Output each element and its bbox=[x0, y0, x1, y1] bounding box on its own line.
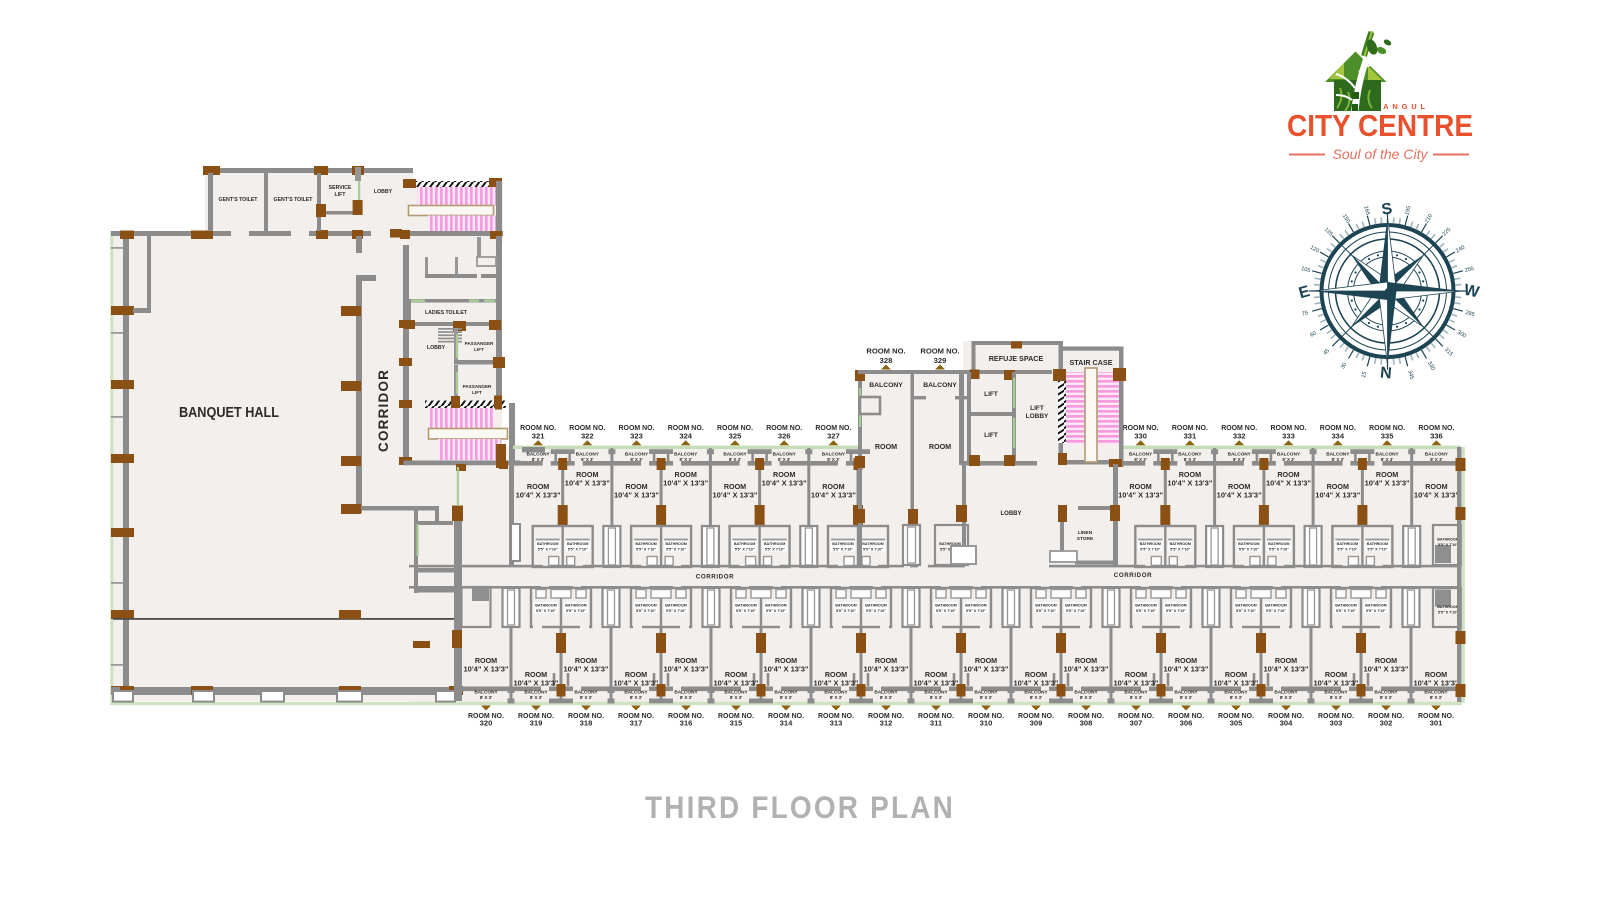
svg-text:336: 336 bbox=[1430, 432, 1443, 441]
svg-text:5'5" X 7'10": 5'5" X 7'10" bbox=[765, 547, 785, 551]
svg-text:334: 334 bbox=[1331, 432, 1344, 441]
svg-text:BATHROOM: BATHROOM bbox=[1135, 604, 1156, 608]
svg-text:8' X 3': 8' X 3' bbox=[1080, 695, 1092, 700]
svg-text:8' X 3': 8' X 3' bbox=[480, 695, 492, 700]
svg-text:BATHROOM: BATHROOM bbox=[1170, 542, 1191, 546]
svg-text:LIFT: LIFT bbox=[984, 432, 998, 439]
svg-text:BATHROOM: BATHROOM bbox=[1268, 542, 1289, 546]
svg-text:319: 319 bbox=[530, 719, 543, 728]
svg-text:5'5" X 7'10": 5'5" X 7'10" bbox=[1266, 609, 1286, 613]
svg-text:8' X 3': 8' X 3' bbox=[980, 695, 992, 700]
svg-text:10'4" X 13'3": 10'4" X 13'3" bbox=[1264, 665, 1309, 674]
svg-text:BATHROOM: BATHROOM bbox=[1165, 604, 1186, 608]
svg-text:BANQUET HALL: BANQUET HALL bbox=[179, 405, 279, 421]
svg-text:5'5" X 7'10": 5'5" X 7'10" bbox=[666, 609, 686, 613]
svg-text:BALCONY: BALCONY bbox=[1174, 690, 1198, 695]
svg-text:8' X 3': 8' X 3' bbox=[630, 695, 642, 700]
svg-text:10'4" X 13'3": 10'4" X 13'3" bbox=[1167, 479, 1212, 488]
svg-text:BALCONY: BALCONY bbox=[824, 690, 848, 695]
svg-text:BATHROOM: BATHROOM bbox=[1365, 604, 1386, 608]
svg-text:8' X 3': 8' X 3' bbox=[680, 695, 692, 700]
svg-text:314: 314 bbox=[780, 719, 793, 728]
svg-text:10'4" X 13'3": 10'4" X 13'3" bbox=[1014, 679, 1059, 688]
svg-text:5'5" X 7'10": 5'5" X 7'10" bbox=[966, 609, 986, 613]
svg-text:BATHROOM: BATHROOM bbox=[1065, 604, 1086, 608]
svg-text:313: 313 bbox=[830, 719, 843, 728]
svg-text:8' X 3': 8' X 3' bbox=[581, 457, 593, 462]
svg-text:8' X 3': 8' X 3' bbox=[1280, 695, 1292, 700]
svg-text:LOBBY: LOBBY bbox=[374, 189, 393, 195]
svg-text:BATHROOM: BATHROOM bbox=[1235, 604, 1256, 608]
svg-text:324: 324 bbox=[679, 432, 692, 441]
svg-text:5'5" X 7'10": 5'5" X 7'10" bbox=[1337, 547, 1357, 551]
svg-text:5'5" X 7'10": 5'5" X 7'10" bbox=[1166, 609, 1186, 613]
svg-text:8' X 3': 8' X 3' bbox=[778, 457, 790, 462]
svg-text:322: 322 bbox=[581, 432, 594, 441]
svg-text:321: 321 bbox=[532, 432, 545, 441]
svg-text:GENT'S TOILET: GENT'S TOILET bbox=[274, 197, 314, 203]
svg-text:5'5" X 7'10": 5'5" X 7'10" bbox=[1036, 609, 1056, 613]
svg-text:BALCONY: BALCONY bbox=[1178, 451, 1202, 456]
svg-text:BALCONY: BALCONY bbox=[1326, 451, 1350, 456]
svg-text:10'4" X 13'3": 10'4" X 13'3" bbox=[814, 679, 859, 688]
svg-text:8' X 3': 8' X 3' bbox=[1430, 457, 1442, 462]
svg-text:5'5" X 7'10": 5'5" X 7'10" bbox=[1269, 547, 1289, 551]
svg-text:8' X 3': 8' X 3' bbox=[1184, 457, 1196, 462]
svg-text:304: 304 bbox=[1280, 719, 1293, 728]
svg-text:8' X 3': 8' X 3' bbox=[730, 695, 742, 700]
svg-text:BATHROOM: BATHROOM bbox=[1337, 542, 1358, 546]
svg-text:5'5" X 7'10": 5'5" X 7'10" bbox=[1438, 543, 1458, 547]
svg-text:10'4" X 13'3": 10'4" X 13'3" bbox=[964, 665, 1009, 674]
svg-text:ROOM: ROOM bbox=[929, 442, 951, 451]
svg-text:10'4" X 13'3": 10'4" X 13'3" bbox=[1266, 479, 1311, 488]
svg-text:302: 302 bbox=[1380, 719, 1393, 728]
svg-text:5'5" X 7'10": 5'5" X 7'10" bbox=[1236, 609, 1256, 613]
svg-text:309: 309 bbox=[1030, 719, 1043, 728]
svg-text:BATHROOM: BATHROOM bbox=[1335, 604, 1356, 608]
svg-text:5'5" X 7'10": 5'5" X 7'10" bbox=[936, 609, 956, 613]
svg-text:SERVICE: SERVICE bbox=[329, 185, 352, 191]
svg-text:333: 333 bbox=[1282, 432, 1295, 441]
svg-text:308: 308 bbox=[1080, 719, 1093, 728]
svg-text:BATHROOM: BATHROOM bbox=[734, 542, 755, 546]
svg-text:315: 315 bbox=[730, 719, 743, 728]
svg-text:10'4" X 13'3": 10'4" X 13'3" bbox=[1414, 491, 1459, 500]
svg-text:329: 329 bbox=[934, 356, 947, 365]
svg-text:335: 335 bbox=[1381, 432, 1394, 441]
svg-text:LINEN: LINEN bbox=[1078, 530, 1093, 536]
svg-text:LOBBY: LOBBY bbox=[1026, 413, 1049, 420]
svg-text:BALCONY: BALCONY bbox=[1324, 690, 1348, 695]
svg-text:10'4" X 13'3": 10'4" X 13'3" bbox=[713, 491, 758, 500]
svg-text:5'5" X 7'10": 5'5" X 7'10" bbox=[1336, 609, 1356, 613]
svg-text:BATHROOM: BATHROOM bbox=[865, 604, 886, 608]
svg-text:8' X 3': 8' X 3' bbox=[729, 457, 741, 462]
svg-text:STORE: STORE bbox=[1077, 536, 1094, 542]
svg-text:307: 307 bbox=[1130, 719, 1143, 728]
svg-text:301: 301 bbox=[1430, 719, 1443, 728]
svg-text:5'5" X 7'10": 5'5" X 7'10" bbox=[666, 547, 686, 551]
svg-text:BALCONY: BALCONY bbox=[576, 451, 600, 456]
svg-text:LIFT: LIFT bbox=[335, 192, 347, 198]
svg-text:318: 318 bbox=[580, 719, 593, 728]
svg-text:BATHROOM: BATHROOM bbox=[635, 542, 656, 546]
svg-text:CORRIDOR: CORRIDOR bbox=[376, 369, 391, 452]
svg-text:10'4" X 13'3": 10'4" X 13'3" bbox=[1365, 479, 1410, 488]
svg-text:5'5" X 7'10": 5'5" X 7'10" bbox=[1140, 547, 1160, 551]
svg-text:LIFT: LIFT bbox=[474, 347, 484, 352]
svg-text:BALCONY: BALCONY bbox=[524, 690, 548, 695]
svg-text:305: 305 bbox=[1230, 719, 1243, 728]
svg-text:BALCONY: BALCONY bbox=[674, 451, 698, 456]
svg-text:BALCONY: BALCONY bbox=[1074, 690, 1098, 695]
svg-text:10'4" X 13'3": 10'4" X 13'3" bbox=[565, 479, 610, 488]
svg-text:GENT'S TOILET: GENT'S TOILET bbox=[219, 197, 259, 203]
svg-text:5'5" X 7'10": 5'5" X 7'10" bbox=[536, 609, 556, 613]
svg-text:5'5" X 7'10": 5'5" X 7'10" bbox=[566, 609, 586, 613]
svg-text:10'4" X 13'3": 10'4" X 13'3" bbox=[1315, 491, 1360, 500]
svg-text:BATHROOM: BATHROOM bbox=[965, 604, 986, 608]
svg-text:5'5" X 7'10": 5'5" X 7'10" bbox=[863, 547, 883, 551]
svg-text:N: N bbox=[1379, 365, 1392, 383]
svg-text:BATHROOM: BATHROOM bbox=[735, 604, 756, 608]
svg-text:5'5" X 7'10": 5'5" X 7'10" bbox=[735, 547, 755, 551]
svg-text:8' X 3': 8' X 3' bbox=[1130, 695, 1142, 700]
svg-text:BALCONY: BALCONY bbox=[1024, 690, 1048, 695]
svg-text:10'4" X 13'3": 10'4" X 13'3" bbox=[1214, 679, 1259, 688]
svg-text:10'4" X 13'3": 10'4" X 13'3" bbox=[762, 479, 807, 488]
svg-text:BALCONY: BALCONY bbox=[574, 690, 598, 695]
svg-text:LADIES TOLILET: LADIES TOLILET bbox=[425, 310, 468, 316]
svg-text:BATHROOM: BATHROOM bbox=[862, 542, 883, 546]
svg-text:BALCONY: BALCONY bbox=[822, 451, 846, 456]
svg-text:306: 306 bbox=[1180, 719, 1193, 728]
svg-text:REFUJE SPACE: REFUJE SPACE bbox=[989, 354, 1044, 363]
svg-text:5'5" X 7'10": 5'5" X 7'10" bbox=[1066, 609, 1086, 613]
svg-text:8' X 3': 8' X 3' bbox=[1030, 695, 1042, 700]
svg-text:8' X 3': 8' X 3' bbox=[1282, 457, 1294, 462]
svg-text:10'4" X 13'3": 10'4" X 13'3" bbox=[514, 679, 559, 688]
svg-text:ROOM: ROOM bbox=[875, 442, 897, 451]
svg-text:5'5" X 7'10": 5'5" X 7'10" bbox=[736, 609, 756, 613]
svg-text:8' X 3': 8' X 3' bbox=[1380, 695, 1392, 700]
svg-text:LOBBY: LOBBY bbox=[1001, 511, 1022, 517]
svg-text:311: 311 bbox=[930, 719, 943, 728]
svg-text:BATHROOM: BATHROOM bbox=[1367, 542, 1388, 546]
svg-text:LIFT: LIFT bbox=[984, 391, 998, 398]
svg-text:325: 325 bbox=[729, 432, 742, 441]
svg-text:8' X 3': 8' X 3' bbox=[1134, 457, 1146, 462]
svg-text:BALCONY: BALCONY bbox=[1274, 690, 1298, 695]
svg-text:BALCONY: BALCONY bbox=[723, 451, 747, 456]
svg-text:10'4" X 13'3": 10'4" X 13'3" bbox=[614, 679, 659, 688]
svg-text:331: 331 bbox=[1184, 432, 1197, 441]
svg-text:STAIR CASE: STAIR CASE bbox=[1070, 358, 1113, 367]
svg-text:ROOM NO.: ROOM NO. bbox=[866, 347, 905, 356]
svg-text:327: 327 bbox=[827, 432, 840, 441]
svg-text:5'5" X 7'10": 5'5" X 7'10" bbox=[866, 609, 886, 613]
svg-text:10'4" X 13'3": 10'4" X 13'3" bbox=[764, 665, 809, 674]
svg-text:8' X 3': 8' X 3' bbox=[1233, 457, 1245, 462]
svg-text:10'4" X 13'3": 10'4" X 13'3" bbox=[664, 665, 709, 674]
svg-text:10'4" X 13'3": 10'4" X 13'3" bbox=[1217, 491, 1262, 500]
svg-text:317: 317 bbox=[630, 719, 643, 728]
svg-text:BALCONY: BALCONY bbox=[624, 690, 648, 695]
svg-text:5'5" X 7'10": 5'5" X 7'10" bbox=[568, 547, 588, 551]
svg-text:328: 328 bbox=[880, 356, 893, 365]
svg-text:BATHROOM: BATHROOM bbox=[1035, 604, 1056, 608]
svg-text:8' X 3': 8' X 3' bbox=[1430, 695, 1442, 700]
svg-text:BALCONY: BALCONY bbox=[1277, 451, 1301, 456]
svg-text:10'4" X 13'3": 10'4" X 13'3" bbox=[1414, 679, 1459, 688]
svg-text:BALCONY: BALCONY bbox=[724, 690, 748, 695]
svg-text:8' X 3': 8' X 3' bbox=[1180, 695, 1192, 700]
svg-text:10'4" X 13'3": 10'4" X 13'3" bbox=[1364, 665, 1409, 674]
svg-text:8' X 3': 8' X 3' bbox=[780, 695, 792, 700]
svg-text:10'4" X 13'3": 10'4" X 13'3" bbox=[864, 665, 909, 674]
svg-text:5'5" X 7'10": 5'5" X 7'10" bbox=[1136, 609, 1156, 613]
svg-text:10'4" X 13'3": 10'4" X 13'3" bbox=[1164, 665, 1209, 674]
svg-text:BALCONY: BALCONY bbox=[474, 690, 498, 695]
svg-text:303: 303 bbox=[1330, 719, 1343, 728]
svg-text:BATHROOM: BATHROOM bbox=[1265, 604, 1286, 608]
svg-text:BATHROOM: BATHROOM bbox=[665, 542, 686, 546]
svg-text:ROOM NO.: ROOM NO. bbox=[920, 347, 959, 356]
svg-text:LOBBY: LOBBY bbox=[427, 345, 446, 351]
svg-text:10'4" X 13'3": 10'4" X 13'3" bbox=[914, 679, 959, 688]
svg-text:10'4" X 13'3": 10'4" X 13'3" bbox=[464, 665, 509, 674]
svg-text:5'5" X 7'10": 5'5" X 7'10" bbox=[1170, 547, 1190, 551]
svg-text:316: 316 bbox=[680, 719, 693, 728]
svg-text:10'4" X 13'3": 10'4" X 13'3" bbox=[1118, 491, 1163, 500]
svg-text:BALCONY: BALCONY bbox=[874, 690, 898, 695]
svg-text:BATHROOM: BATHROOM bbox=[565, 604, 586, 608]
svg-text:BATHROOM: BATHROOM bbox=[765, 604, 786, 608]
svg-text:10'4" X 13'3": 10'4" X 13'3" bbox=[811, 491, 856, 500]
svg-text:BALCONY: BALCONY bbox=[527, 451, 551, 456]
svg-text:10'4" X 13'3": 10'4" X 13'3" bbox=[564, 665, 609, 674]
svg-text:8' X 3': 8' X 3' bbox=[1332, 457, 1344, 462]
svg-text:8' X 3': 8' X 3' bbox=[1230, 695, 1242, 700]
svg-text:8' X 3': 8' X 3' bbox=[630, 457, 642, 462]
svg-text:10'4" X 13'3": 10'4" X 13'3" bbox=[714, 679, 759, 688]
svg-text:BATHROOM: BATHROOM bbox=[665, 604, 686, 608]
svg-text:LIFT: LIFT bbox=[472, 390, 482, 395]
svg-text:332: 332 bbox=[1233, 432, 1246, 441]
svg-text:BATHROOM: BATHROOM bbox=[835, 604, 856, 608]
svg-text:BATHROOM: BATHROOM bbox=[1437, 605, 1458, 609]
svg-text:BATHROOM: BATHROOM bbox=[635, 604, 656, 608]
svg-text:BATHROOM: BATHROOM bbox=[764, 542, 785, 546]
svg-text:8' X 3': 8' X 3' bbox=[827, 457, 839, 462]
svg-text:BALCONY: BALCONY bbox=[924, 690, 948, 695]
svg-text:5'5" X 7'10": 5'5" X 7'10" bbox=[833, 547, 853, 551]
svg-text:CITY CENTRE: CITY CENTRE bbox=[1287, 108, 1473, 143]
svg-text:326: 326 bbox=[778, 432, 791, 441]
svg-text:BATHROOM: BATHROOM bbox=[935, 604, 956, 608]
svg-text:PASSANGER: PASSANGER bbox=[463, 384, 492, 389]
svg-text:BATHROOM: BATHROOM bbox=[1238, 542, 1259, 546]
svg-text:LIFT: LIFT bbox=[1030, 405, 1044, 412]
svg-text:312: 312 bbox=[880, 719, 893, 728]
svg-text:5'5" X 7'10": 5'5" X 7'10" bbox=[636, 547, 656, 551]
svg-text:5'5" X 7'10": 5'5" X 7'10" bbox=[1438, 610, 1458, 614]
svg-text:BALCONY: BALCONY bbox=[1228, 451, 1252, 456]
svg-text:10'4" X 13'3": 10'4" X 13'3" bbox=[663, 479, 708, 488]
svg-text:BATHROOM: BATHROOM bbox=[832, 542, 853, 546]
svg-text:BATHROOM: BATHROOM bbox=[535, 604, 556, 608]
svg-text:PASSANGER: PASSANGER bbox=[465, 341, 494, 346]
svg-text:THIRD FLOOR PLAN: THIRD FLOOR PLAN bbox=[645, 789, 955, 825]
svg-text:BATHROOM: BATHROOM bbox=[1140, 542, 1161, 546]
svg-text:5'5" X 7'10": 5'5" X 7'10" bbox=[636, 609, 656, 613]
svg-text:10'4" X 13'3": 10'4" X 13'3" bbox=[614, 491, 659, 500]
svg-text:BALCONY: BALCONY bbox=[625, 451, 649, 456]
svg-text:BALCONY: BALCONY bbox=[774, 690, 798, 695]
svg-text:5'5" X 7'10": 5'5" X 7'10" bbox=[1366, 609, 1386, 613]
svg-text:8' X 3': 8' X 3' bbox=[830, 695, 842, 700]
svg-text:CORRIDOR: CORRIDOR bbox=[1114, 572, 1153, 579]
svg-text:8' X 3': 8' X 3' bbox=[580, 695, 592, 700]
svg-text:BALCONY: BALCONY bbox=[1224, 690, 1248, 695]
svg-text:BALCONY: BALCONY bbox=[1374, 690, 1398, 695]
svg-text:8' X 3': 8' X 3' bbox=[530, 695, 542, 700]
svg-text:8' X 3': 8' X 3' bbox=[1330, 695, 1342, 700]
svg-text:8' X 3': 8' X 3' bbox=[1381, 457, 1393, 462]
svg-text:BALCONY: BALCONY bbox=[869, 382, 903, 389]
svg-text:10'4" X 13'3": 10'4" X 13'3" bbox=[1114, 679, 1159, 688]
svg-text:Soul of the City: Soul of the City bbox=[1333, 146, 1429, 162]
svg-text:8' X 3': 8' X 3' bbox=[680, 457, 692, 462]
svg-text:320: 320 bbox=[480, 719, 493, 728]
svg-text:BALCONY: BALCONY bbox=[1425, 451, 1449, 456]
svg-text:BALCONY: BALCONY bbox=[1376, 451, 1400, 456]
svg-text:BALCONY: BALCONY bbox=[1129, 451, 1153, 456]
svg-text:BALCONY: BALCONY bbox=[773, 451, 797, 456]
svg-text:BATHROOM: BATHROOM bbox=[537, 542, 558, 546]
svg-text:8' X 3': 8' X 3' bbox=[930, 695, 942, 700]
svg-text:BATHROOM: BATHROOM bbox=[567, 542, 588, 546]
svg-text:10'4" X 13'3": 10'4" X 13'3" bbox=[1064, 665, 1109, 674]
svg-text:5'5" X 7'10": 5'5" X 7'10" bbox=[538, 547, 558, 551]
svg-text:330: 330 bbox=[1134, 432, 1147, 441]
svg-text:BALCONY: BALCONY bbox=[974, 690, 998, 695]
svg-text:BALCONY: BALCONY bbox=[674, 690, 698, 695]
svg-text:BATHROOM: BATHROOM bbox=[1437, 538, 1458, 542]
svg-text:5'5" X 7'10": 5'5" X 7'10" bbox=[836, 609, 856, 613]
svg-text:310: 310 bbox=[980, 719, 993, 728]
svg-text:10'4" X 13'3": 10'4" X 13'3" bbox=[516, 491, 561, 500]
svg-text:323: 323 bbox=[630, 432, 643, 441]
svg-text:5'5" X 7'10": 5'5" X 7'10" bbox=[1367, 547, 1387, 551]
svg-text:5'5" X 7'10": 5'5" X 7'10" bbox=[1239, 547, 1259, 551]
svg-text:BALCONY: BALCONY bbox=[1124, 690, 1148, 695]
svg-text:5'5" X 7'10": 5'5" X 7'10" bbox=[766, 609, 786, 613]
svg-text:8' X 3': 8' X 3' bbox=[880, 695, 892, 700]
svg-text:10'4" X 13'3": 10'4" X 13'3" bbox=[1314, 679, 1359, 688]
svg-text:BALCONY: BALCONY bbox=[1424, 690, 1448, 695]
svg-text:BALCONY: BALCONY bbox=[923, 382, 957, 389]
svg-text:CORRIDOR: CORRIDOR bbox=[696, 574, 735, 581]
svg-text:8' X 3': 8' X 3' bbox=[532, 457, 544, 462]
